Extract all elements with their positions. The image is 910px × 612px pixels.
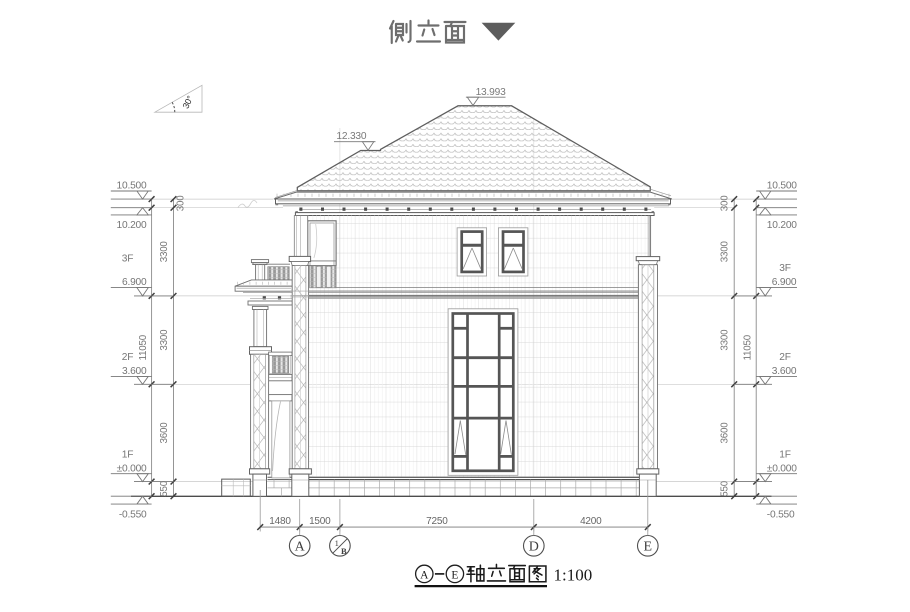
svg-text:11050: 11050 [743,334,754,360]
svg-text:3.600: 3.600 [772,366,797,377]
svg-text:3300: 3300 [159,329,170,351]
svg-text:3600: 3600 [720,422,731,444]
svg-text:±0.000: ±0.000 [117,464,147,475]
svg-text:7250: 7250 [426,516,448,527]
svg-text:3300: 3300 [720,241,731,263]
svg-text:-0.550: -0.550 [119,509,147,520]
svg-text:±0.000: ±0.000 [767,464,797,475]
svg-text:10.200: 10.200 [767,220,797,231]
svg-text:10.200: 10.200 [117,220,147,231]
svg-text:3600: 3600 [159,422,170,444]
svg-text:13.993: 13.993 [476,87,506,98]
svg-text:2F: 2F [779,352,791,363]
svg-text:550: 550 [159,480,170,496]
svg-text:1: 1 [335,538,339,548]
svg-text:1F: 1F [122,449,134,460]
svg-text:-0.550: -0.550 [767,509,795,520]
svg-text:D: D [529,540,539,555]
svg-text:1:100: 1:100 [554,566,593,585]
svg-text:6.900: 6.900 [772,277,797,288]
svg-text:300: 300 [175,195,186,211]
svg-text:3300: 3300 [720,329,731,351]
svg-text:3.600: 3.600 [122,366,147,377]
svg-text:A: A [295,540,306,555]
svg-text:11050: 11050 [138,334,149,360]
svg-text:A: A [420,569,429,581]
svg-text:3F: 3F [122,253,134,264]
svg-text:E: E [644,540,653,555]
svg-text:550: 550 [720,480,731,496]
svg-text:3F: 3F [779,263,791,274]
svg-text:10.500: 10.500 [767,180,797,191]
svg-text:300: 300 [720,195,731,211]
svg-text:1500: 1500 [309,516,331,527]
svg-text:6.900: 6.900 [122,277,147,288]
svg-text:2F: 2F [122,352,134,363]
svg-text:B: B [341,546,347,556]
svg-text:10.500: 10.500 [117,180,147,191]
svg-text:3300: 3300 [159,241,170,263]
svg-text:12.330: 12.330 [336,131,366,142]
svg-text:E: E [451,569,458,581]
svg-text:4200: 4200 [580,516,602,527]
svg-text:1480: 1480 [269,516,291,527]
svg-text:1F: 1F [779,449,791,460]
